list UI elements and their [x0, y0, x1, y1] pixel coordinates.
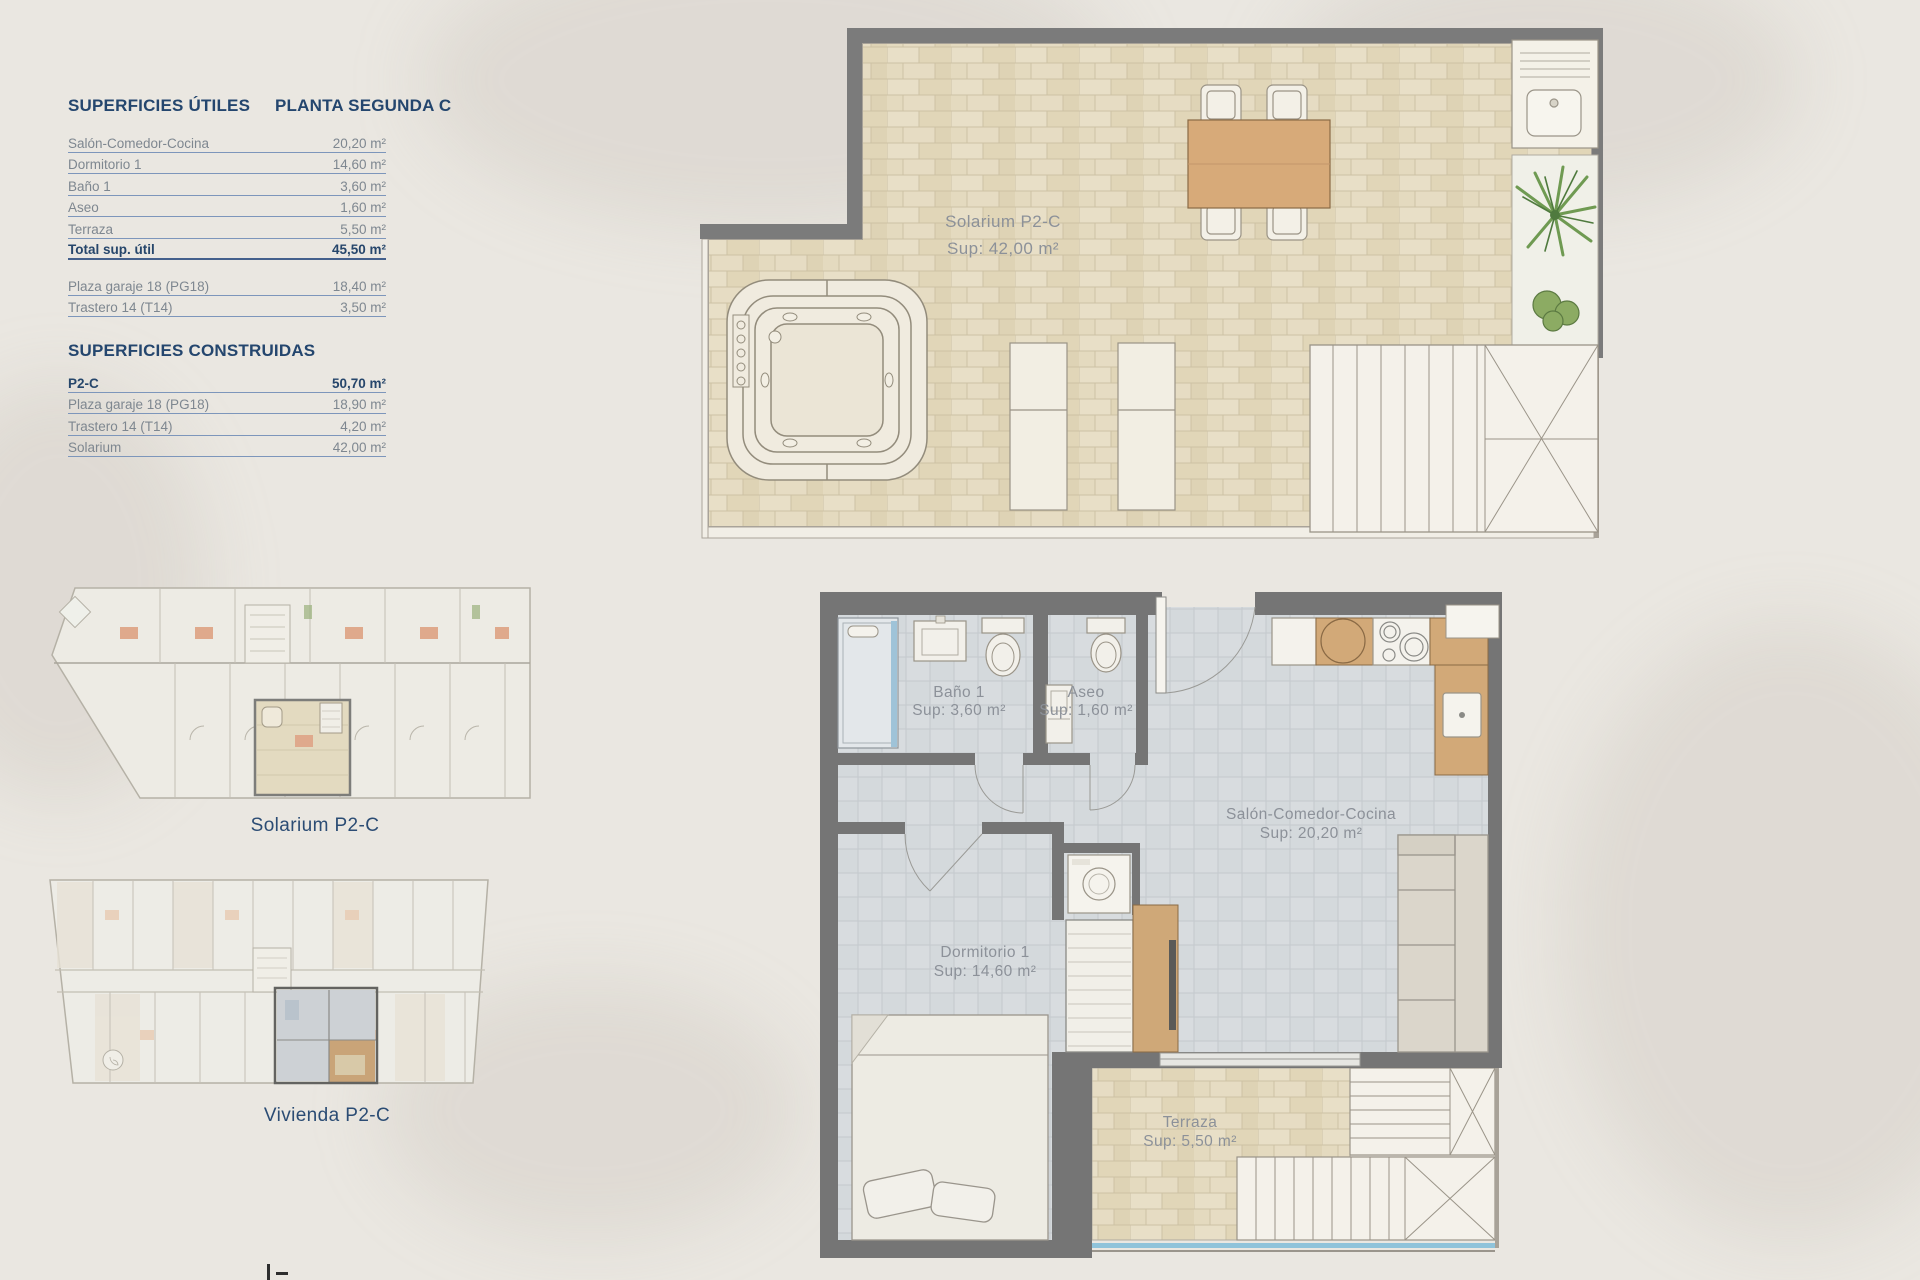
bano-label: Baño 1 [933, 684, 985, 701]
facade-pillar [1446, 605, 1499, 638]
solarium-stairs [1310, 345, 1598, 532]
row-value: 20,20 m² [333, 136, 386, 151]
sliding-door [1160, 1053, 1360, 1066]
row-value: 18,90 m² [333, 397, 386, 412]
glass-balustrade [1092, 1243, 1495, 1248]
row-value: 45,50 m² [332, 242, 386, 257]
jacuzzi [727, 280, 927, 480]
row-value: 42,00 m² [333, 440, 386, 455]
table-row: Solarium 42,00 m² [68, 436, 386, 458]
washing-machine [1068, 855, 1130, 913]
row-value: 18,40 m² [333, 279, 386, 294]
miniplan-solarium-label: Solarium P2-C [195, 815, 435, 837]
table-row: Plaza garaje 18 (PG18) 18,40 m² [68, 274, 386, 296]
row-label: P2-C [68, 376, 99, 391]
bathroom-sink [914, 616, 966, 661]
mini-stair-core [245, 605, 290, 663]
terraza-label: Terraza [1163, 1114, 1217, 1131]
table-row: Dormitorio 1 14,60 m² [68, 153, 386, 175]
row-label: Terraza [68, 222, 113, 237]
row-label: Plaza garaje 18 (PG18) [68, 279, 209, 294]
aseo-area: Sup: 1,60 m² [1039, 702, 1133, 719]
surface-tables: SUPERFICIES ÚTILES PLANTA SEGUNDA C Saló… [68, 96, 386, 457]
row-label: Dormitorio 1 [68, 157, 142, 172]
solarium-room-area: Sup: 42,00 m² [947, 239, 1059, 258]
row-value: 14,60 m² [333, 157, 386, 172]
vivienda-plan: Baño 1 Sup: 3,60 m² Aseo Sup: 1,60 m² Sa… [810, 585, 1515, 1265]
dormitorio-area: Sup: 14,60 m² [934, 963, 1037, 980]
miniplan-vivienda-label: Vivienda P2-C [207, 1105, 447, 1127]
outdoor-sink [1512, 40, 1598, 148]
row-label: Trastero 14 (T14) [68, 419, 173, 434]
table-row: Plaza garaje 18 (PG18) 18,90 m² [68, 393, 386, 415]
sofa [1398, 835, 1488, 1052]
row-label: Trastero 14 (T14) [68, 300, 173, 315]
media-wall [1133, 905, 1178, 1052]
page-mark [276, 1272, 288, 1275]
row-label: Salón-Comedor-Cocina [68, 136, 209, 151]
mini-highlight-solarium [255, 700, 350, 795]
row-value: 50,70 m² [332, 376, 386, 391]
dormitorio-label: Dormitorio 1 [940, 944, 1029, 961]
miniplan-solarium-overview [40, 575, 540, 815]
row-value: 1,60 m² [340, 200, 386, 215]
tv [1169, 940, 1176, 1030]
row-value: 3,50 m² [340, 300, 386, 315]
table-row-total: Total sup. útil 45,50 m² [68, 239, 386, 261]
table-title-utiles: SUPERFICIES ÚTILES [68, 96, 250, 115]
bano-area: Sup: 3,60 m² [912, 702, 1006, 719]
table-title-construidas: SUPERFICIES CONSTRUIDAS [68, 341, 386, 361]
table-row: P2-C 50,70 m² [68, 371, 386, 393]
miniplan-vivienda-overview [35, 870, 535, 1100]
table-row: Trastero 14 (T14) 3,50 m² [68, 296, 386, 318]
aseo-label: Aseo [1068, 684, 1105, 701]
row-value: 4,20 m² [340, 419, 386, 434]
row-label: Total sup. útil [68, 242, 155, 257]
salon-area: Sup: 20,20 m² [1260, 825, 1363, 842]
wardrobe [1066, 920, 1133, 1052]
row-value: 3,60 m² [340, 179, 386, 194]
row-label: Baño 1 [68, 179, 111, 194]
solarium-plan: Solarium P2-C Sup: 42,00 m² [695, 15, 1610, 550]
table-row: Terraza 5,50 m² [68, 217, 386, 239]
mini-highlight-vivienda [275, 988, 377, 1083]
bed [852, 1015, 1048, 1240]
row-label: Plaza garaje 18 (PG18) [68, 397, 209, 412]
fridge [1272, 618, 1316, 665]
row-label: Solarium [68, 440, 121, 455]
row-value: 5,50 m² [340, 222, 386, 237]
floorplan-sheet: SUPERFICIES ÚTILES PLANTA SEGUNDA C Saló… [0, 0, 1920, 1280]
mini-stair-core [253, 948, 291, 992]
table-row: Baño 1 3,60 m² [68, 174, 386, 196]
page-mark [267, 1264, 270, 1280]
table-row: Trastero 14 (T14) 4,20 m² [68, 414, 386, 436]
solarium-room-label: Solarium P2-C [945, 212, 1061, 231]
palm-plants [1512, 155, 1598, 350]
table-subtitle-planta: PLANTA SEGUNDA C [275, 96, 451, 116]
table-row: Aseo 1,60 m² [68, 196, 386, 218]
table-row: Salón-Comedor-Cocina 20,20 m² [68, 131, 386, 153]
shower [838, 618, 898, 748]
salon-label: Salón-Comedor-Cocina [1226, 806, 1396, 823]
background-texture [1560, 620, 1920, 1240]
table-header: SUPERFICIES ÚTILES PLANTA SEGUNDA C [68, 96, 386, 120]
terraza-area: Sup: 5,50 m² [1143, 1133, 1237, 1150]
row-label: Aseo [68, 200, 99, 215]
